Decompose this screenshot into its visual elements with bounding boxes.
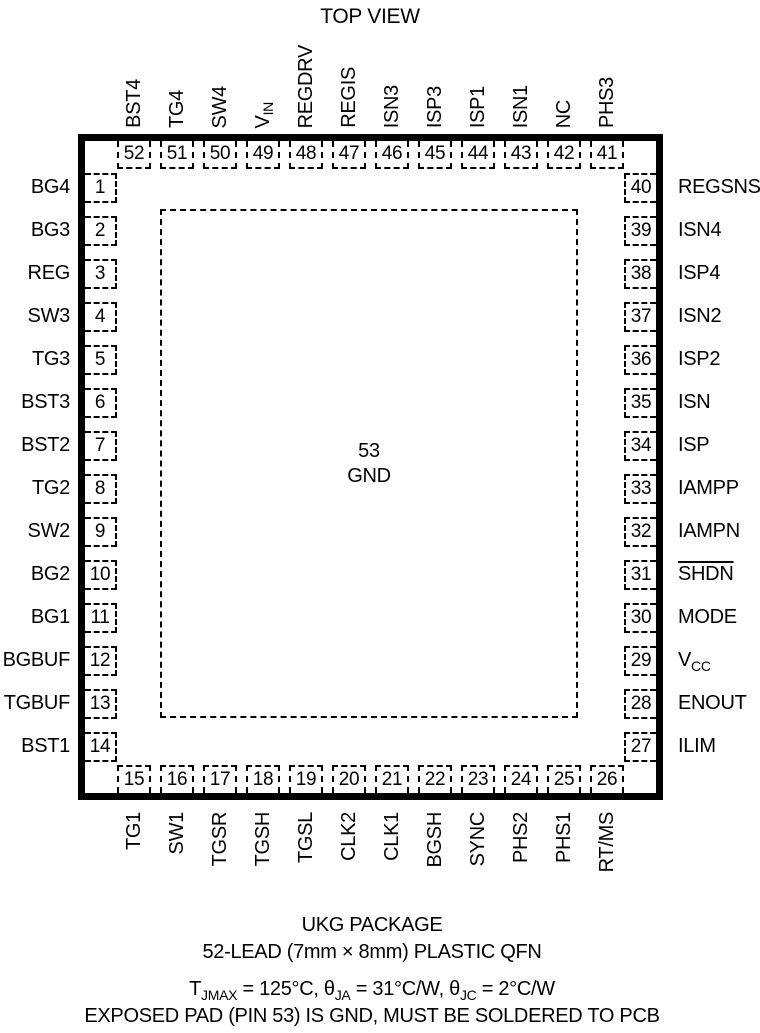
pin-box-50: 50 — [203, 141, 237, 169]
pin-label-regdrv: REGDRV — [296, 45, 316, 128]
pin-box-49: 49 — [246, 141, 280, 169]
pin-box-7: 7 — [85, 431, 117, 461]
pin-label-vcc: VCC — [678, 645, 711, 675]
pin-label-isp1: ISP1 — [468, 86, 488, 128]
pin-box-12: 12 — [85, 646, 117, 676]
pin-label-sw4: SW4 — [210, 86, 230, 128]
pin-label-phs3: PHS3 — [597, 77, 617, 128]
pin-box-42: 42 — [547, 141, 581, 169]
pin-label-enout: ENOUT — [678, 688, 747, 718]
pin-box-2: 2 — [85, 216, 117, 246]
pin-box-15: 15 — [117, 765, 151, 793]
pin-box-30: 30 — [624, 603, 656, 633]
pin-label-vin: VIN — [253, 102, 273, 128]
pin-label-isn2: ISN2 — [678, 301, 721, 331]
pin-box-34: 34 — [624, 431, 656, 461]
diagram-title: TOP VIEW — [0, 5, 740, 29]
pin-box-19: 19 — [289, 765, 323, 793]
pin-box-18: 18 — [246, 765, 280, 793]
pin-label-sw1: SW1 — [167, 812, 187, 854]
pin-box-44: 44 — [461, 141, 495, 169]
pin-box-27: 27 — [624, 732, 656, 762]
pin-label-isp2: ISP2 — [678, 344, 720, 374]
pin-label-bg4: BG4 — [0, 172, 70, 202]
pin-box-13: 13 — [85, 689, 117, 719]
pin-box-46: 46 — [375, 141, 409, 169]
pin-box-32: 32 — [624, 517, 656, 547]
qfn-pinout-diagram: TOP VIEW 53 GND 525150494847464544434241… — [0, 0, 760, 1033]
pin-box-9: 9 — [85, 517, 117, 547]
pin-box-41: 41 — [590, 141, 624, 169]
pin-box-25: 25 — [547, 765, 581, 793]
caption-package-type: 52-LEAD (7mm × 8mm) PLASTIC QFN — [0, 940, 744, 964]
pin-column-right: 4039383736353433323130292827 — [624, 141, 656, 793]
pin-box-31: 31 — [624, 560, 656, 590]
pin-box-22: 22 — [418, 765, 452, 793]
pin-box-52: 52 — [117, 141, 151, 169]
pin-box-5: 5 — [85, 345, 117, 375]
pin-box-28: 28 — [624, 689, 656, 719]
pin-label-isn3: ISN3 — [382, 85, 402, 128]
pin-label-bgsh: BGSH — [425, 812, 445, 867]
pin-box-45: 45 — [418, 141, 452, 169]
pin-label-tg2: TG2 — [0, 473, 70, 503]
pin-label-tg1: TG1 — [124, 812, 144, 850]
pin-box-6: 6 — [85, 388, 117, 418]
pin-label-iampn: IAMPN — [678, 516, 740, 546]
pin-label-nc: NC — [554, 100, 574, 128]
pin-box-43: 43 — [504, 141, 538, 169]
pin-label-isp4: ISP4 — [678, 258, 720, 288]
pin-label-tgsh: TGSH — [253, 812, 273, 866]
pin-label-isp: ISP — [678, 430, 709, 460]
pin-label-bst3: BST3 — [0, 387, 70, 417]
pin-box-4: 4 — [85, 302, 117, 332]
pin-label-bst2: BST2 — [0, 430, 70, 460]
pin-label-clk1: CLK1 — [382, 812, 402, 861]
pin-label-tg3: TG3 — [0, 344, 70, 374]
pin-label-iampp: IAMPP — [678, 473, 739, 503]
pin-label-sync: SYNC — [468, 812, 488, 866]
exposed-pad-name: GND — [347, 464, 391, 489]
pin-label-reg: REG — [0, 258, 70, 288]
pin-box-16: 16 — [160, 765, 194, 793]
pin-label-isn1: ISN1 — [511, 85, 531, 128]
pin-box-21: 21 — [375, 765, 409, 793]
package-outline: 53 GND 525150494847464544434241 15161718… — [78, 134, 663, 800]
pin-label-isp3: ISP3 — [425, 86, 445, 128]
pin-box-8: 8 — [85, 474, 117, 504]
pin-label-clk2: CLK2 — [339, 812, 359, 861]
pin-box-35: 35 — [624, 388, 656, 418]
pin-box-48: 48 — [289, 141, 323, 169]
pin-column-left: 1234567891011121314 — [85, 141, 117, 793]
pin-box-17: 17 — [203, 765, 237, 793]
exposed-pad: 53 GND — [160, 209, 578, 718]
pin-label-tg4: TG4 — [167, 90, 187, 128]
pin-label-tgbuf: TGBUF — [0, 688, 70, 718]
pin-box-10: 10 — [85, 560, 117, 590]
pin-box-26: 26 — [590, 765, 624, 793]
pin-label-tgsl: TGSL — [296, 812, 316, 863]
pin-box-33: 33 — [624, 474, 656, 504]
pin-label-sw2: SW2 — [0, 516, 70, 546]
pin-box-24: 24 — [504, 765, 538, 793]
pin-label-bg3: BG3 — [0, 215, 70, 245]
pin-box-51: 51 — [160, 141, 194, 169]
pin-label-phs1: PHS1 — [554, 812, 574, 863]
pin-box-39: 39 — [624, 216, 656, 246]
pin-box-3: 3 — [85, 259, 117, 289]
pin-box-29: 29 — [624, 646, 656, 676]
pin-label-mode: MODE — [678, 602, 737, 632]
pin-label-bst1: BST1 — [0, 731, 70, 761]
pin-label-bst4: BST4 — [124, 79, 144, 128]
pin-label-tgsr: TGSR — [210, 812, 230, 866]
pin-box-47: 47 — [332, 141, 366, 169]
pin-box-1: 1 — [85, 173, 117, 203]
pin-label-bg2: BG2 — [0, 559, 70, 589]
pin-box-23: 23 — [461, 765, 495, 793]
pin-box-40: 40 — [624, 173, 656, 203]
exposed-pad-number: 53 — [358, 439, 380, 464]
pin-label-shdn: SHDN — [678, 559, 733, 589]
caption-thermal-specs: TJMAX = 125°C, θJA = 31°C/W, θJC = 2°C/W — [0, 977, 744, 1007]
pin-label-isn4: ISN4 — [678, 215, 721, 245]
pin-label-sw3: SW3 — [0, 301, 70, 331]
pin-label-ilim: ILIM — [678, 731, 716, 761]
pin-label-regis: REGIS — [339, 67, 359, 128]
pin-box-11: 11 — [85, 603, 117, 633]
caption-exposed-pad-note: EXPOSED PAD (PIN 53) IS GND, MUST BE SOL… — [0, 1004, 744, 1028]
pin-label-isn: ISN — [678, 387, 710, 417]
pin-label-bg1: BG1 — [0, 602, 70, 632]
pin-row-top: 525150494847464544434241 — [85, 141, 656, 169]
pin-box-38: 38 — [624, 259, 656, 289]
pin-label-phs2: PHS2 — [511, 812, 531, 863]
caption-package-name: UKG PACKAGE — [0, 913, 744, 937]
pin-box-14: 14 — [85, 732, 117, 762]
pin-box-20: 20 — [332, 765, 366, 793]
pin-row-bottom: 151617181920212223242526 — [85, 765, 656, 793]
pin-box-37: 37 — [624, 302, 656, 332]
pin-label-rt-ms: RT/MS — [597, 812, 617, 872]
pin-label-bgbuf: BGBUF — [0, 645, 70, 675]
pin-box-36: 36 — [624, 345, 656, 375]
pin-label-regsns: REGSNS — [678, 172, 760, 202]
